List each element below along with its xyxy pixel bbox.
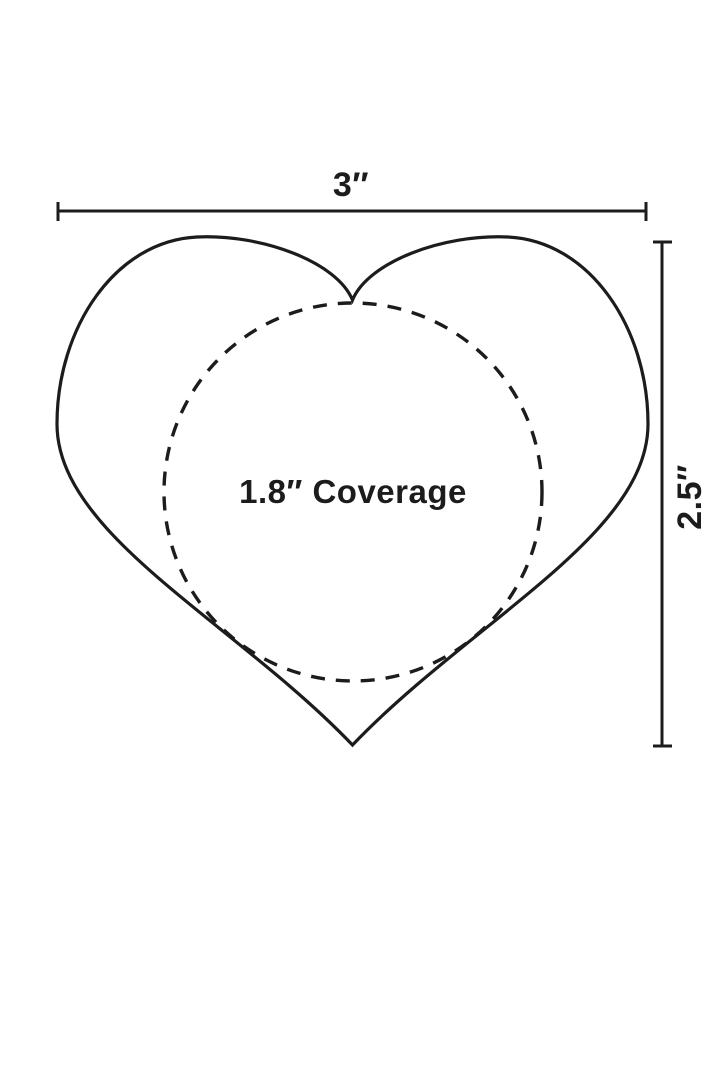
coverage-label: 1.8″ Coverage: [239, 473, 467, 510]
width-label: 3″: [333, 166, 369, 204]
heart-dimension-diagram: 3″ 2.5″ 1.8″ Coverage: [0, 0, 720, 1080]
height-label: 2.5″: [671, 464, 709, 530]
height-dimension-line: [653, 242, 672, 746]
width-dimension-line: [58, 202, 646, 221]
diagram-canvas: 3″ 2.5″ 1.8″ Coverage: [0, 0, 720, 1080]
